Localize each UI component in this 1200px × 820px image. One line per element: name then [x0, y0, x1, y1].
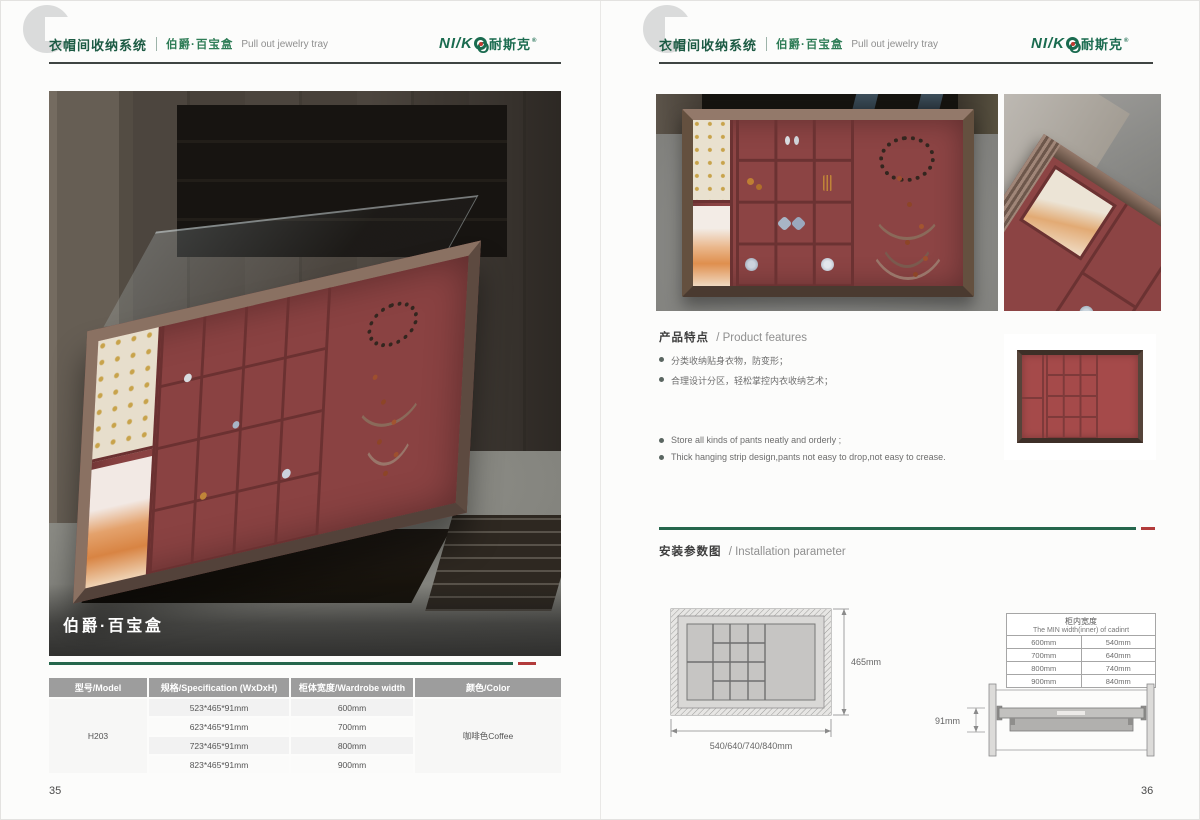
logo-o-icon: O — [1066, 37, 1079, 50]
tray-left-column — [693, 120, 733, 286]
spec-cell: 523*465*91mm — [149, 699, 289, 716]
compartment-line — [1080, 271, 1135, 308]
feature-item: 分类收纳贴身衣物，防变形； — [659, 354, 989, 367]
inner-width-cell: 640mm — [1081, 649, 1156, 662]
inner-width-table: 柜内宽度 The MIN width(inner) of cadinrt 600… — [1006, 613, 1156, 688]
model-cell: H203 — [49, 699, 147, 773]
width-cell: 900mm — [291, 756, 413, 773]
cabinet-width-cell: 600mm — [1007, 636, 1082, 649]
necklace-beads — [897, 176, 902, 181]
tray-open-compartment — [857, 120, 963, 286]
feature-text: Thick hanging strip design,pants not eas… — [671, 452, 946, 462]
width-cell: 600mm — [291, 699, 413, 716]
feature-item: 合理设计分区，轻松掌控内衣收纳艺术； — [659, 374, 989, 387]
registered-mark: ® — [532, 38, 536, 44]
topview-svg: 465mm 540/640/740/840mm — [657, 597, 895, 765]
spec-cell: 723*465*91mm — [149, 737, 289, 754]
scarf-cell — [85, 456, 151, 589]
features-heading-en: / Product features — [716, 332, 807, 344]
series-name-en: Pull out jewelry tray — [241, 39, 328, 50]
page-left: C 衣帽间收纳系统 伯爵·百宝盒 Pull out jewelry tray N… — [1, 1, 601, 820]
system-title: 衣帽间收纳系统 — [49, 35, 147, 54]
inner-width-title-en: The MIN width(inner) of cadinrt — [1007, 627, 1155, 634]
earrings — [794, 136, 799, 145]
topview-diagram: 465mm 540/640/740/840mm — [657, 597, 895, 770]
scarf-cell — [92, 327, 158, 462]
section-divider — [49, 662, 536, 665]
page-number: 35 — [49, 785, 61, 797]
cabinet-width-cell: 700mm — [1007, 649, 1082, 662]
spec-cell: 623*465*91mm — [149, 718, 289, 735]
depth-dimension-label: 465mm — [851, 657, 881, 667]
inner-width-cell: 540mm — [1081, 636, 1156, 649]
thumbnail-grid — [1046, 355, 1098, 438]
header-separator — [156, 37, 157, 51]
logo-suffix: 耐斯克 — [1081, 34, 1123, 53]
divider-red-dash — [518, 662, 536, 665]
bullet-icon — [659, 455, 664, 460]
crystal-flower — [745, 258, 758, 271]
necklace-strand — [863, 152, 953, 280]
divider-green-line — [49, 662, 513, 665]
bullet-icon — [659, 438, 664, 443]
jewelry-tray — [682, 109, 974, 297]
crystal-flower — [821, 258, 834, 271]
logo-text: NI/K — [439, 35, 473, 52]
earrings — [785, 136, 790, 145]
wardrobe-photo: 伯爵·百宝盒 — [49, 91, 561, 656]
divider-green-line — [659, 527, 1136, 530]
header-rule — [49, 62, 561, 64]
table-row: 600mm 540mm — [1007, 636, 1156, 649]
thumbnail-left-column — [1022, 355, 1044, 438]
bullet-icon — [659, 377, 664, 382]
color-cell: 咖啡色Coffee — [415, 699, 561, 773]
section-divider — [659, 527, 1155, 530]
jewelry-tray-corner — [1004, 134, 1161, 311]
brand-logo: NI/K O 耐斯克 ® — [1031, 34, 1128, 53]
logo-o-icon: O — [474, 37, 487, 50]
page-divider — [600, 1, 601, 820]
features-bullets-zh: 分类收纳贴身衣物，防变形； 合理设计分区，轻松掌控内衣收纳艺术； — [659, 354, 989, 387]
thumbnail-tray — [1017, 350, 1143, 443]
divider-red-dash — [1141, 527, 1155, 530]
gold-tassel — [823, 175, 832, 191]
crystal-flower — [1077, 303, 1096, 311]
feature-text: Store all kinds of pants neatly and orde… — [671, 435, 841, 445]
feature-text: 分类收纳贴身衣物，防变形； — [671, 354, 788, 367]
feature-text: 合理设计分区，轻松掌控内衣收纳艺术； — [671, 374, 833, 387]
width-dimension-label: 540/640/740/840mm — [710, 741, 793, 751]
features-heading-zh: 产品特点 — [659, 332, 709, 344]
system-title: 衣帽间收纳系统 — [659, 35, 757, 54]
series-name: 伯爵·百宝盒 — [776, 36, 843, 52]
width-cell: 700mm — [291, 718, 413, 735]
feature-item: Thick hanging strip design,pants not eas… — [659, 452, 1079, 462]
features-heading: 产品特点 / Product features — [659, 329, 807, 345]
table-row: 800mm 740mm — [1007, 662, 1156, 675]
installation-heading: 安装参数图 / Installation parameter — [659, 543, 846, 559]
series-name: 伯爵·百宝盒 — [166, 36, 233, 52]
tray-compartment-grid — [148, 287, 331, 574]
table-header-spec: 规格/Specification (WxDxH) — [149, 678, 289, 697]
compartment-line — [1022, 397, 1042, 399]
registered-mark: ® — [1124, 38, 1128, 44]
table-header-width: 柜体宽度/Wardrobe width — [291, 678, 413, 697]
catalog-spread: C 衣帽间收纳系统 伯爵·百宝盒 Pull out jewelry tray N… — [0, 0, 1200, 820]
amber-earring — [747, 178, 754, 185]
logo-red-dot — [479, 42, 483, 46]
spec-table: 型号/Model 规格/Specification (WxDxH) 柜体宽度/W… — [49, 678, 561, 773]
cabinet-width-cell: 800mm — [1007, 662, 1082, 675]
tray-open-compartment — [319, 256, 469, 535]
feature-item: Store all kinds of pants neatly and orde… — [659, 435, 1079, 445]
logo-suffix: 耐斯克 — [489, 34, 531, 53]
features-bullets-en: Store all kinds of pants neatly and orde… — [659, 435, 1079, 462]
table-header-color: 颜色/Color — [415, 678, 561, 697]
installation-heading-en: / Installation parameter — [729, 546, 846, 558]
header-rule — [659, 62, 1153, 64]
scarf-cell — [693, 120, 730, 203]
bullet-icon — [659, 357, 664, 362]
width-cell: 800mm — [291, 737, 413, 754]
logo-red-dot — [1071, 42, 1075, 46]
tray-corner-photo — [1004, 94, 1161, 311]
amber-earring — [756, 184, 762, 190]
tray-topview-photo — [656, 94, 998, 311]
spec-cell: 823*465*91mm — [149, 756, 289, 773]
series-name-en: Pull out jewelry tray — [851, 39, 938, 50]
table-header-model: 型号/Model — [49, 678, 147, 697]
header-separator — [766, 37, 767, 51]
height-dimension-label: 91mm — [935, 716, 960, 726]
page-right: C 衣帽间收纳系统 伯爵·百宝盒 Pull out jewelry tray N… — [601, 1, 1200, 820]
page-number: 36 — [1141, 785, 1153, 797]
sideview-diagram: 91mm — [933, 681, 1163, 766]
sideview-svg: 91mm — [933, 681, 1163, 761]
installation-heading-zh: 安装参数图 — [659, 546, 722, 558]
inner-width-table-header: 柜内宽度 The MIN width(inner) of cadinrt — [1007, 614, 1156, 636]
scarf-cell — [693, 206, 730, 286]
photo-title: 伯爵·百宝盒 — [63, 612, 163, 636]
logo-text: NI/K — [1031, 35, 1065, 52]
brand-logo: NI/K O 耐斯克 ® — [439, 34, 536, 53]
inner-width-cell: 740mm — [1081, 662, 1156, 675]
table-row: 700mm 640mm — [1007, 649, 1156, 662]
inner-width-title-zh: 柜内宽度 — [1007, 616, 1155, 627]
